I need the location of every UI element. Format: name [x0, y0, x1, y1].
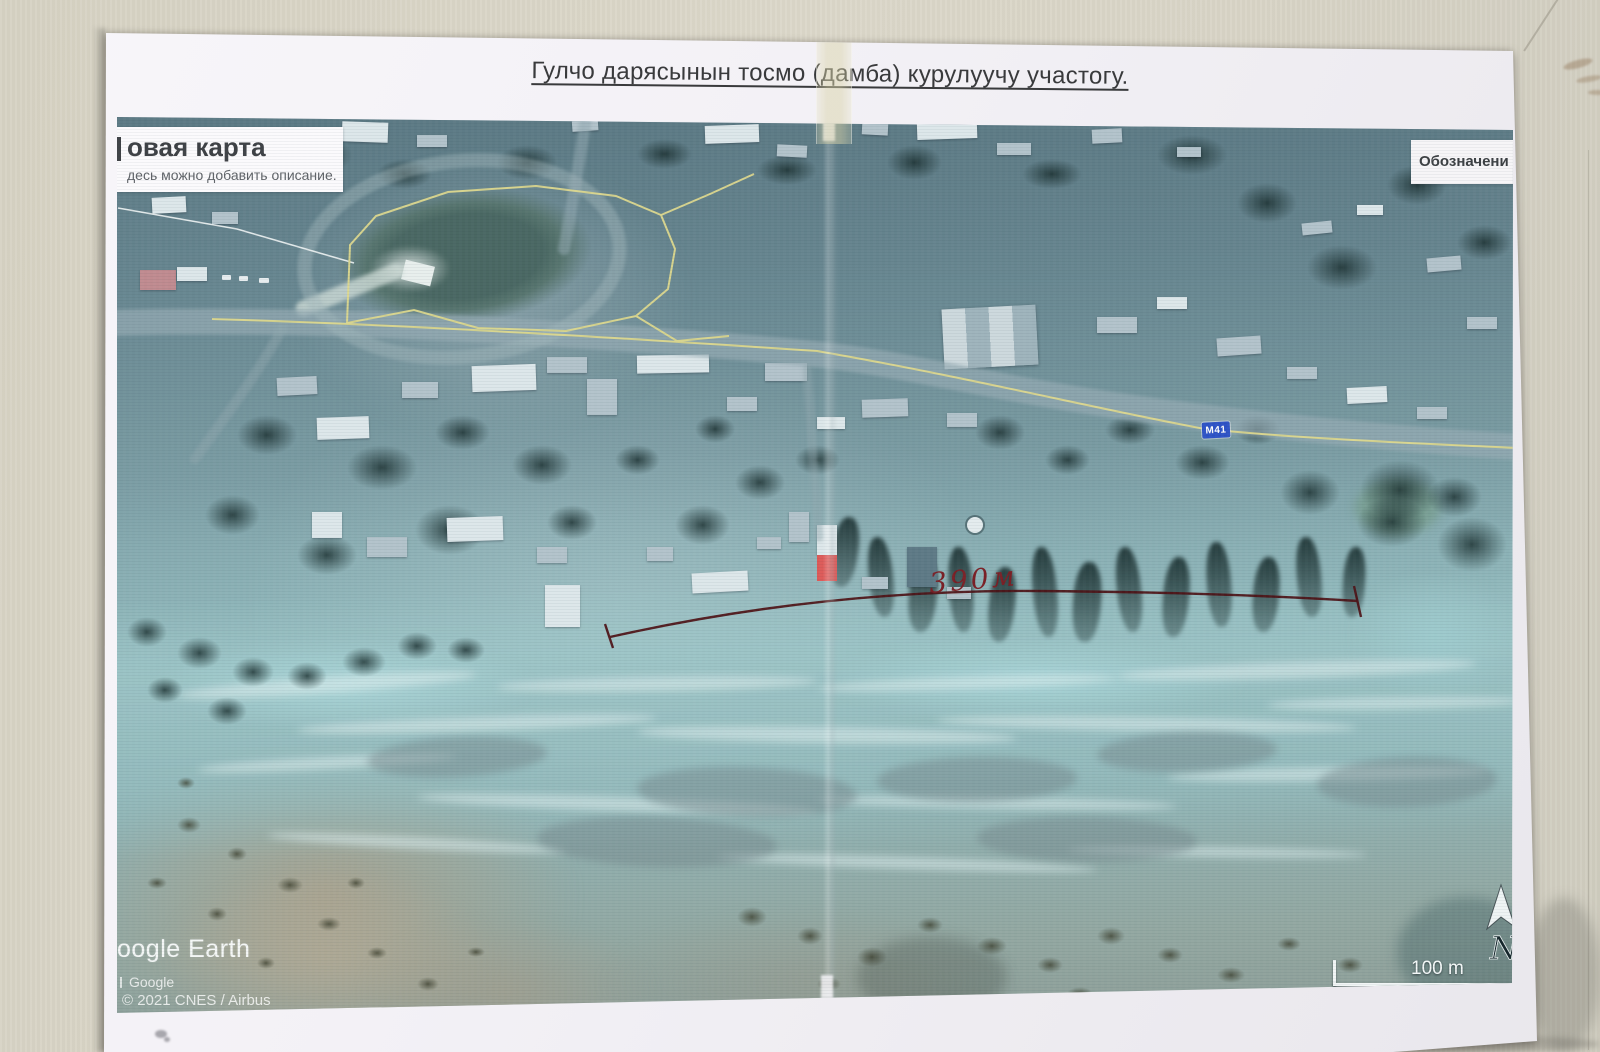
satellite-map: овая карта десь можно добавить описание.…: [117, 117, 1513, 1013]
photo-of-printed-satellite-map: Гулчо дарясынын тосмо (дамба) курулуучу …: [0, 0, 1600, 1052]
tape-strip: [816, 28, 852, 144]
paper-smudge: [164, 1037, 170, 1042]
paper-sheet: Гулчо дарясынын тосмо (дамба) курулуучу …: [0, 0, 1600, 1052]
paper-wrapper: Гулчо дарясынын тосмо (дамба) курулуучу …: [0, 0, 1600, 1052]
photo-vignette: [117, 117, 1513, 1013]
